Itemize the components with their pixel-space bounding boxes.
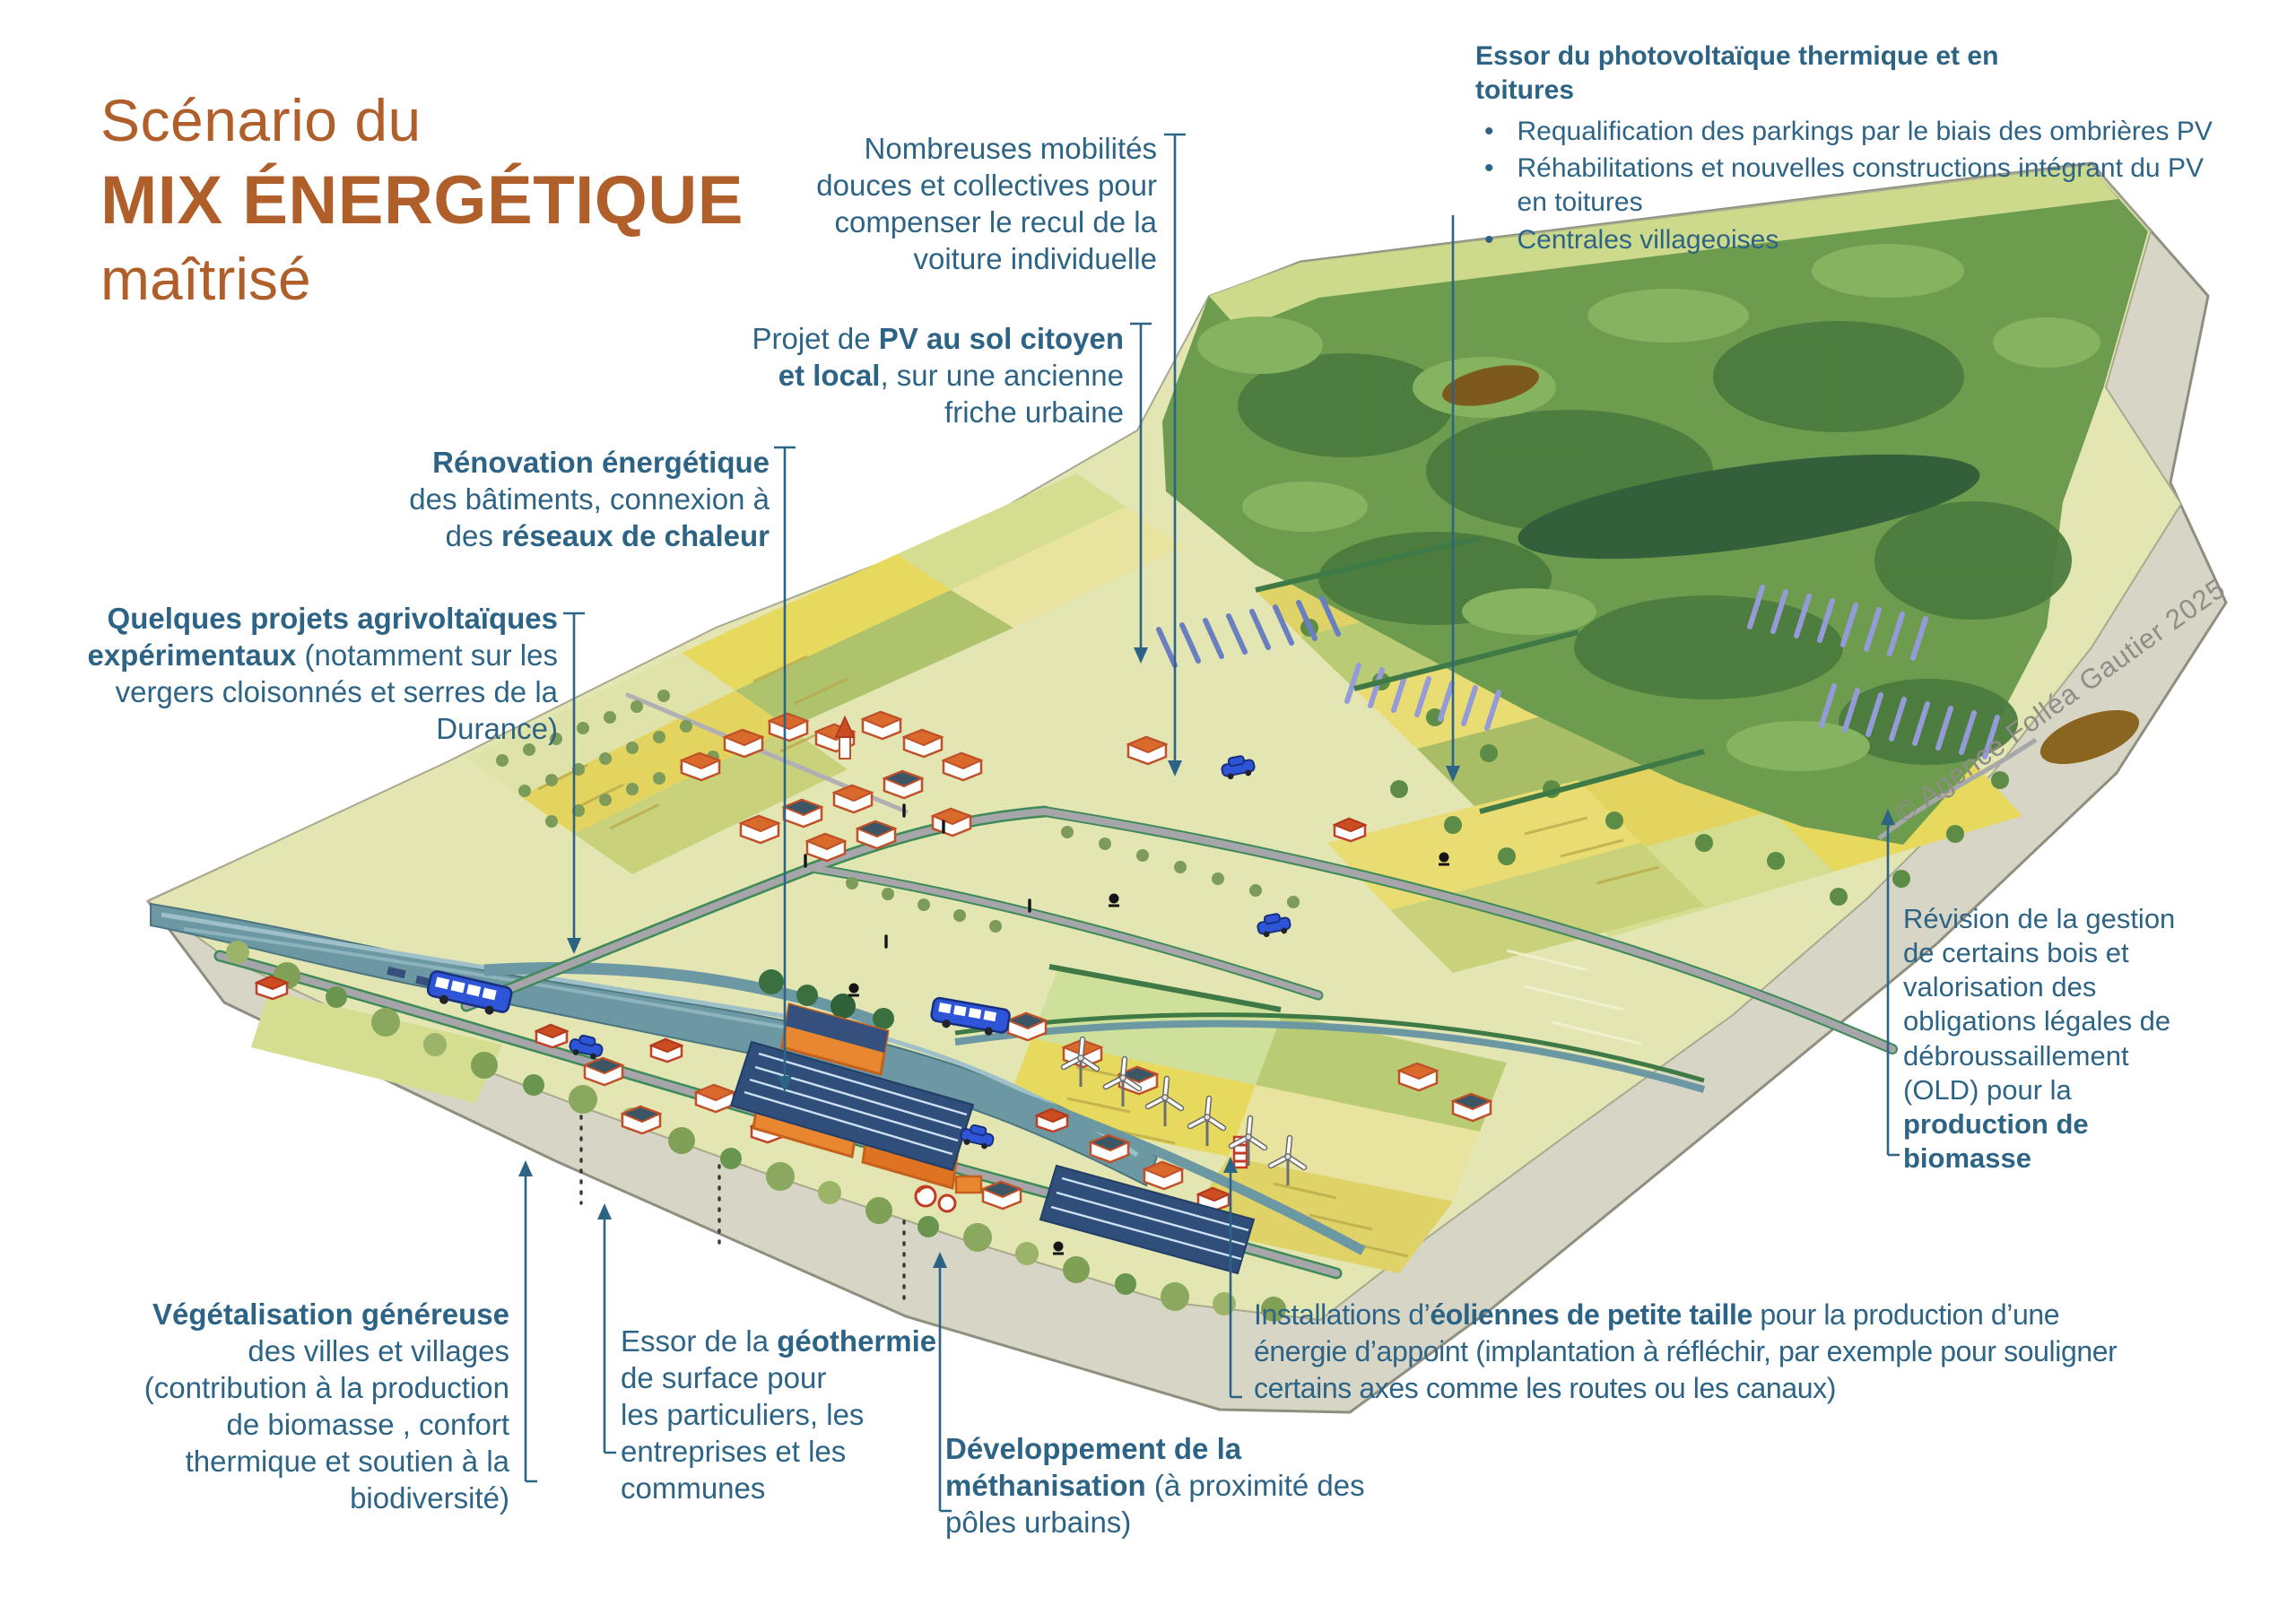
bullet-icon: • (1475, 223, 1494, 257)
list-item: • Requalification des parkings par le bi… (1475, 115, 2229, 149)
page-title: Scénario du MIX ÉNERGÉTIQUE maîtrisé (100, 86, 744, 313)
annotation-eoliennes: Installations d’éoliennes de petite tail… (1254, 1297, 2117, 1407)
title-line-3: maîtrisé (100, 245, 744, 313)
leader-geothermie (597, 1203, 616, 1453)
annotation-methanisation: Développement de laméthanisation (à prox… (945, 1431, 1365, 1541)
essor-pv-bullet-list: • Requalification des parkings par le bi… (1475, 115, 2229, 257)
list-item: • Centrales villageoises (1475, 223, 2229, 257)
annotation-geothermie: Essor de la géothermiede surface pourles… (621, 1324, 936, 1507)
annotation-vegetalisation: Végétalisation généreusedes villes et vi… (144, 1297, 509, 1516)
annotation-revision-bois: Révision de la gestionde certains bois e… (1903, 902, 2175, 1176)
leader-vegetalisation (518, 1160, 537, 1481)
title-line-1: Scénario du (100, 86, 744, 154)
bullet-text: Centrales villageoises (1518, 223, 1779, 257)
bullet-icon: • (1475, 115, 1494, 149)
essor-pv-heading: Essor du photovoltaïque thermique et ent… (1475, 39, 2229, 108)
annotation-essor-pv: Essor du photovoltaïque thermique et ent… (1475, 39, 2229, 257)
list-item: • Réhabilitations et nouvelles construct… (1475, 152, 2229, 220)
infographic-page: Scénario du MIX ÉNERGÉTIQUE maîtrisé Nom… (0, 0, 2296, 1623)
annotation-agrivoltaique: Quelques projets agrivoltaïquesexpérimen… (87, 601, 558, 748)
bullet-text: Requalification des parkings par le biai… (1518, 115, 2213, 149)
bullet-icon: • (1475, 152, 1494, 220)
annotation-mobilites: Nombreuses mobilitésdouces et collective… (816, 131, 1157, 278)
title-line-2: MIX ÉNERGÉTIQUE (100, 161, 744, 239)
bullet-text: Réhabilitations et nouvelles constructio… (1518, 152, 2204, 220)
annotation-pv-sol: Projet de PV au sol citoyenet local, sur… (752, 321, 1125, 431)
annotation-renovation: Rénovation énergétiquedes bâtiments, con… (409, 445, 770, 555)
